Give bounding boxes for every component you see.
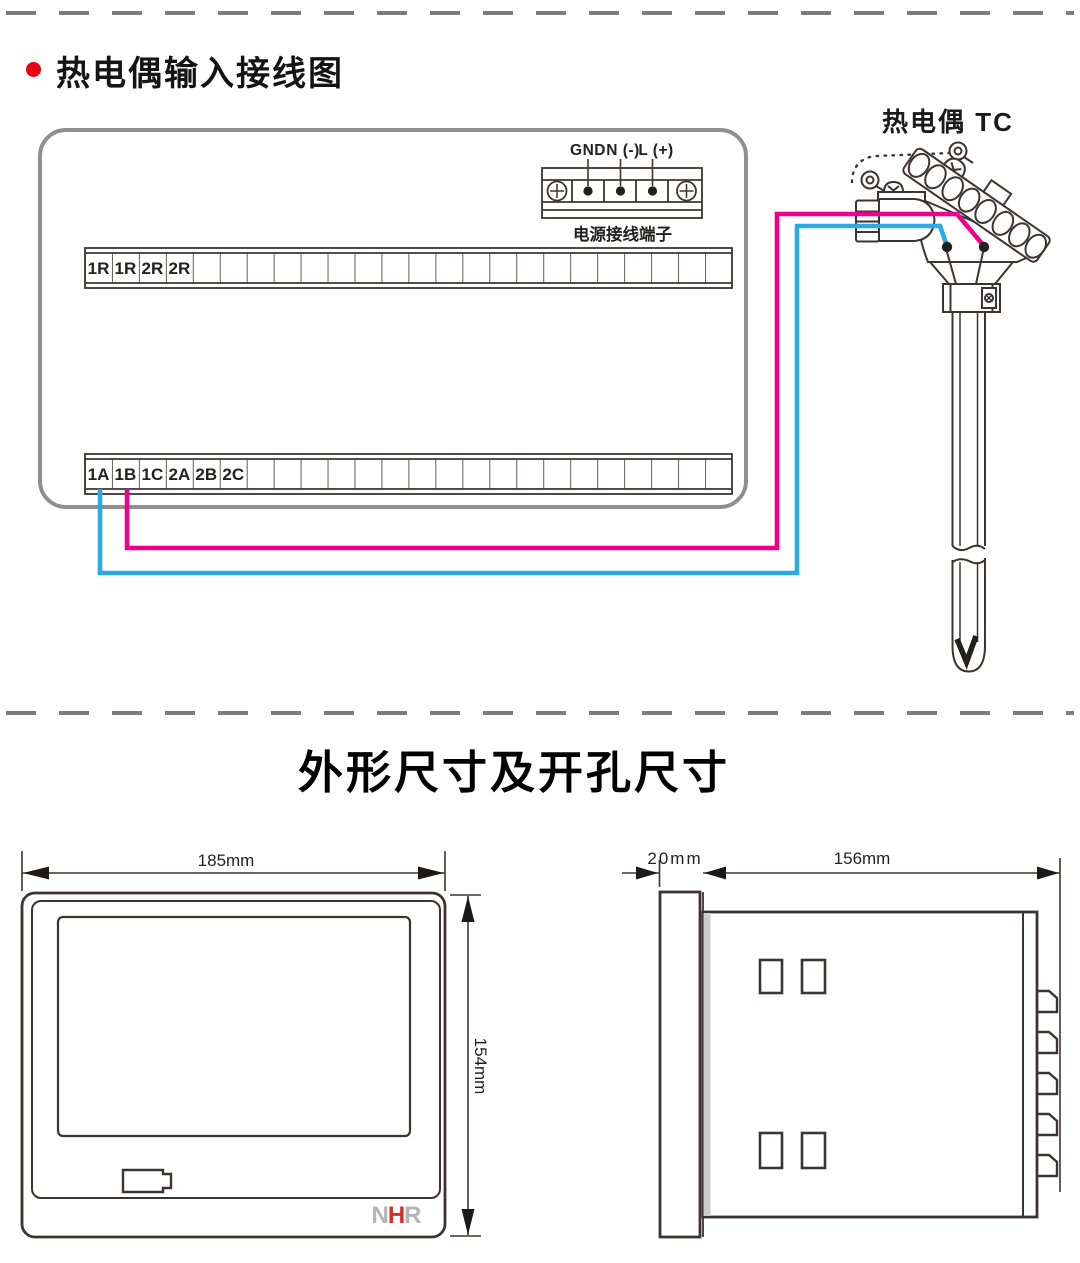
width-dimension-label: 185mm [198, 851, 255, 870]
terminal-dot [583, 186, 592, 195]
terminal-label: 1A [88, 465, 110, 484]
arrowhead-icon [704, 867, 726, 880]
probe-stem [953, 312, 986, 672]
side-body [703, 912, 1037, 1217]
upper-terminal-strip: 1R 1R 2R 2R [85, 248, 732, 288]
terminal-label: 1C [142, 465, 164, 484]
front-view: 185mm NHR 154mm [22, 851, 490, 1237]
side-bezel [660, 892, 700, 1237]
terminal-label: 1R [88, 259, 110, 278]
mounting-clips [1037, 991, 1057, 1176]
body-depth-label: 156mm [834, 849, 891, 868]
manual-page: 热电偶输入接线图 1R 1R 2R 2R 1A [0, 0, 1080, 1263]
screw-icon [548, 182, 567, 201]
terminal-dot [648, 186, 657, 195]
terminal-dot [616, 186, 625, 195]
bezel-depth-dimension: 20mm [622, 849, 703, 887]
screw-icon [677, 182, 696, 201]
wire-terminal-dot [942, 242, 952, 252]
hex-nut [856, 201, 879, 242]
wire-terminal-dot [979, 242, 989, 252]
sensor-label: 热电偶 TC [882, 107, 1014, 137]
terminal-label: 1R [115, 259, 137, 278]
head-funnel [930, 262, 1013, 284]
arrowhead-icon [23, 867, 49, 880]
width-dimension: 185mm [22, 851, 445, 891]
power-terminal-caption: 电源接线端子 [573, 224, 673, 244]
bezel-depth-label: 20mm [647, 849, 702, 868]
power-pin-label: L (+) [638, 142, 673, 159]
power-pin-label: GND [570, 142, 606, 159]
terminal-label: 1B [115, 465, 137, 484]
arrowhead-icon [636, 867, 658, 880]
terminal-label: 2R [169, 259, 191, 278]
arrowhead-icon [418, 867, 444, 880]
lower-terminal-strip: 1A 1B 1C 2A 2B 2C [85, 454, 732, 494]
arrowhead-icon [462, 1209, 475, 1235]
height-dimension-label: 154mm [471, 1038, 490, 1095]
chain-eyelet [862, 172, 887, 193]
terminal-label: 2C [222, 465, 244, 484]
arrowhead-icon [462, 896, 475, 922]
junction-mark [957, 636, 976, 662]
gland [943, 284, 1000, 312]
panel-gap-shading [704, 913, 711, 1216]
front-outer-frame [22, 893, 445, 1237]
terminal-label: 2A [169, 465, 191, 484]
thermocouple-wiring-diagram: 1R 1R 2R 2R 1A 1B 1C 2A 2B 2C [0, 0, 1080, 713]
arrowhead-icon [1037, 867, 1059, 880]
terminal-label: 2R [142, 259, 164, 278]
brand-logo: NHR [371, 1202, 421, 1229]
side-view: 20mm 156mm [622, 849, 1060, 1237]
terminal-label: 2B [195, 465, 217, 484]
head-neck [879, 199, 935, 241]
power-pin-label: N (-) [606, 142, 640, 159]
dimension-drawings: 185mm NHR 154mm 20mm [0, 713, 1080, 1263]
height-dimension: 154mm [450, 895, 490, 1236]
